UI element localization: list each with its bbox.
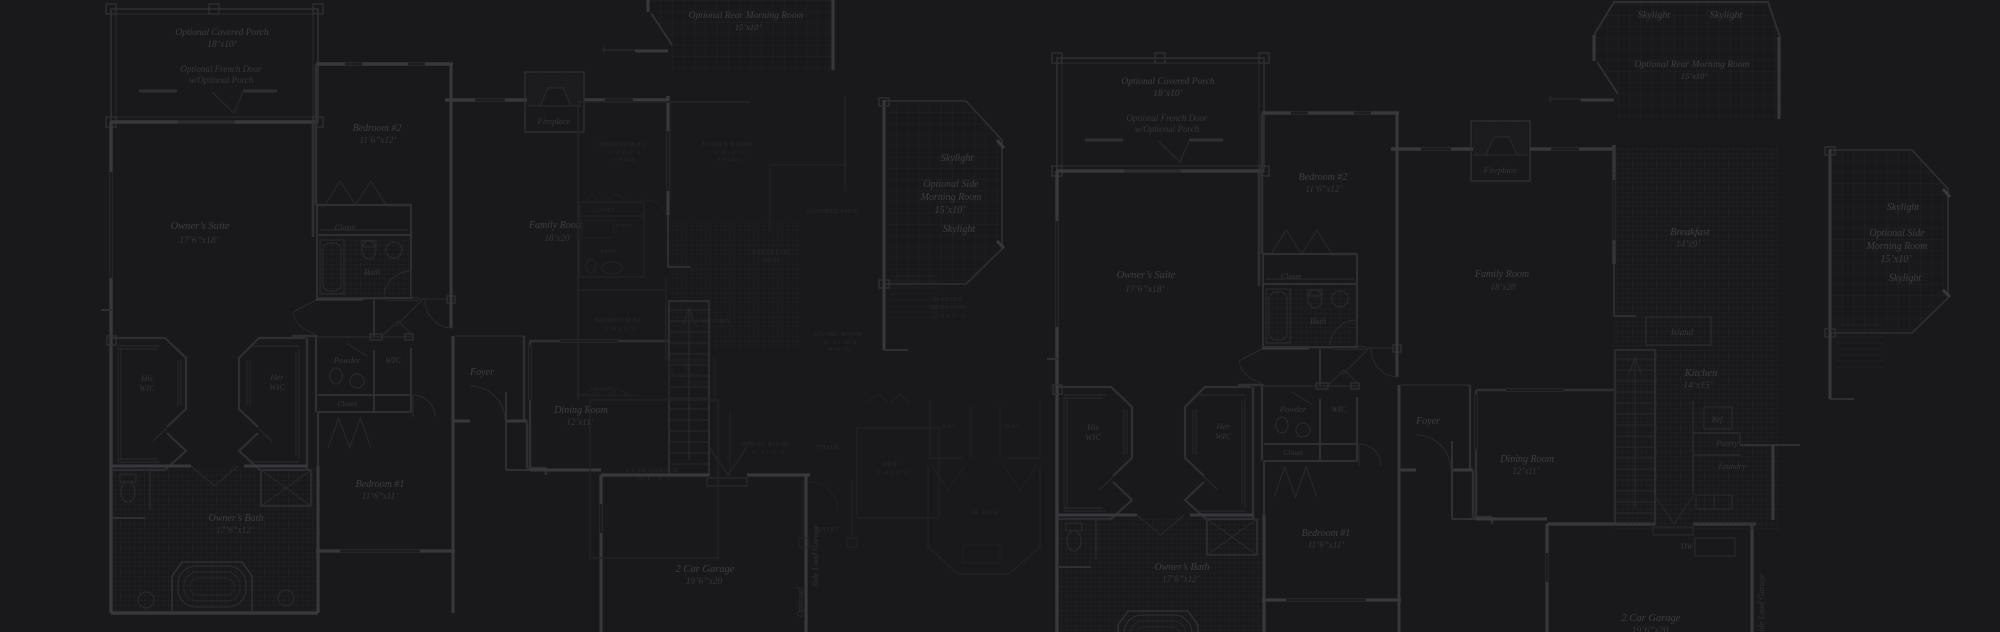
svg-text:NOOK: NOOK xyxy=(762,258,781,264)
svg-text:15’-0 x 17’-0: 15’-0 x 17’-0 xyxy=(712,151,745,156)
svg-text:Laundry: Laundry xyxy=(1717,462,1746,471)
svg-text:14’x15’: 14’x15’ xyxy=(1683,381,1713,391)
svg-text:LIVING ROOM: LIVING ROOM xyxy=(813,331,862,338)
svg-text:COVERED PATIO: COVERED PATIO xyxy=(807,209,860,215)
svg-text:Island: Island xyxy=(1670,327,1694,337)
svg-text:Pantry: Pantry xyxy=(1715,439,1738,448)
svg-text:UTILITY: UTILITY xyxy=(685,381,709,387)
svg-text:W.I.C.: W.I.C. xyxy=(941,424,958,430)
svg-text:2 CAR GARAGE: 2 CAR GARAGE xyxy=(626,467,679,474)
svg-text:Kitchen: Kitchen xyxy=(1684,368,1718,379)
svg-text:BEDROOM #2: BEDROOM #2 xyxy=(595,317,641,324)
svg-text:BEDROOM: BEDROOM xyxy=(930,304,966,311)
svg-text:MASTER: MASTER xyxy=(933,296,963,303)
svg-text:11’-0 x 12’-0: 11’-0 x 12’-0 xyxy=(876,471,909,476)
svg-text:DINING ROOM: DINING ROOM xyxy=(741,441,789,448)
svg-text:Breakfast: Breakfast xyxy=(1670,227,1711,238)
svg-text:CLOSET: CLOSET xyxy=(595,386,614,391)
svg-text:ENTRY: ENTRY xyxy=(817,527,839,533)
svg-text:19’-8 x 20’-0: 19’-8 x 20’-0 xyxy=(637,477,670,482)
svg-text:14’x9’: 14’x9’ xyxy=(1676,240,1701,250)
svg-text:10’-0 CLG: 10’-0 CLG xyxy=(827,348,854,353)
svg-text:M. BATH: M. BATH xyxy=(972,510,997,516)
svg-text:BREAKFAST: BREAKFAST xyxy=(752,250,791,256)
svg-text:BEDROOM #3: BEDROOM #3 xyxy=(599,141,645,148)
svg-text:LINEN: LINEN xyxy=(616,223,632,228)
svg-text:11’-0 x 12’-0: 11’-0 x 12’-0 xyxy=(752,451,785,456)
svg-text:9’-0 CLG: 9’-0 CLG xyxy=(612,158,636,163)
svg-text:9’-0 CLG: 9’-0 CLG xyxy=(717,158,741,163)
svg-text:CLOSET: CLOSET xyxy=(593,209,615,214)
svg-text:KITCHEN: KITCHEN xyxy=(701,319,731,325)
svg-text:FOYER: FOYER xyxy=(817,445,839,451)
svg-text:DW: DW xyxy=(1680,542,1695,551)
svg-text:Ref.: Ref. xyxy=(1711,415,1725,424)
svg-text:W.I.C.: W.I.C. xyxy=(1005,424,1022,430)
svg-text:11’-0 x 11’-0: 11’-0 x 11’-0 xyxy=(604,327,637,332)
svg-text:BATH: BATH xyxy=(600,249,616,255)
svg-text:FAMILY ROOM: FAMILY ROOM xyxy=(702,141,752,148)
svg-text:14’-0 x 18’-0: 14’-0 x 18’-0 xyxy=(823,341,856,346)
svg-text:11’-0 x 12’-0: 11’-0 x 12’-0 xyxy=(608,151,641,156)
svg-text:DEN: DEN xyxy=(883,461,898,468)
